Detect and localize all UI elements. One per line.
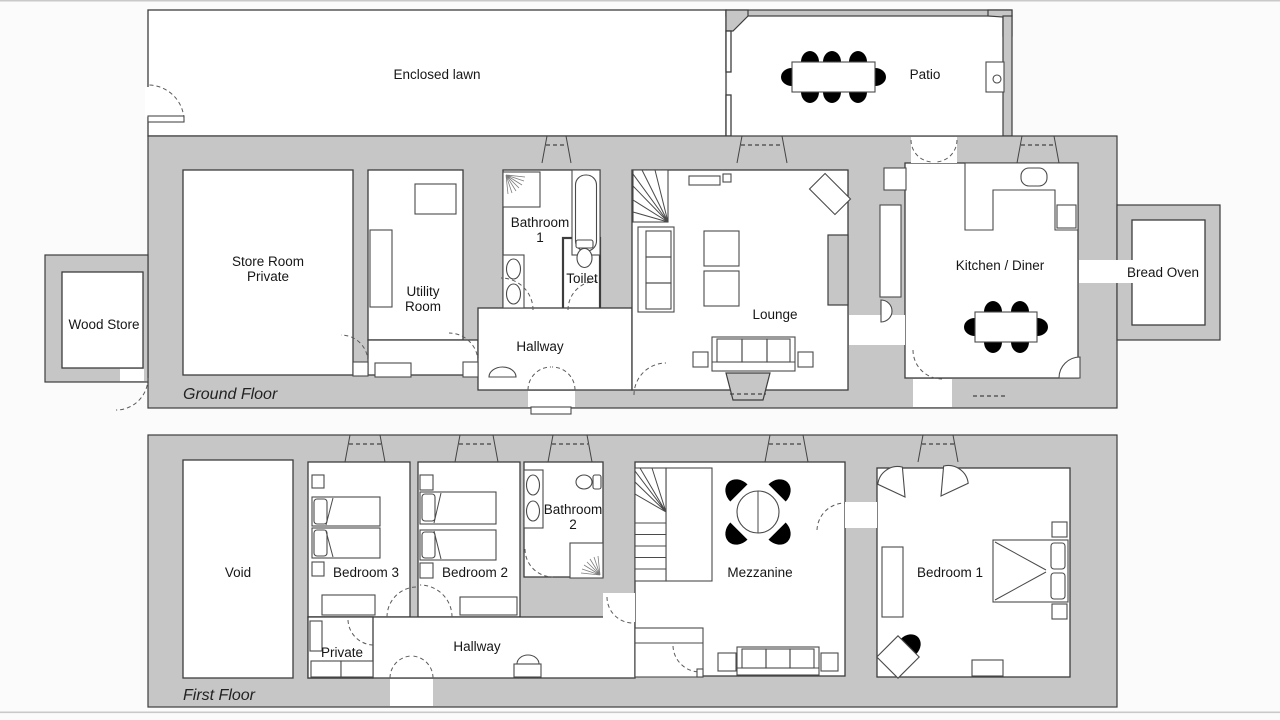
label-bathroom1-2: 1 — [536, 230, 544, 245]
label-bread-oven: Bread Oven — [1127, 265, 1199, 280]
label-toilet: Toilet — [566, 271, 598, 286]
kitchen-dresser-icon — [880, 205, 901, 297]
nightstand-icon — [312, 562, 324, 576]
label-private: Private — [321, 645, 363, 660]
sofa-bottom-icon — [712, 337, 795, 371]
bed-icon — [420, 530, 496, 560]
nightstand-icon — [1052, 604, 1067, 619]
toilet-icon — [576, 475, 601, 489]
store-room-door-sill — [353, 362, 368, 376]
label-bathroom2-1: Bathroom — [544, 502, 603, 517]
nightstand-icon — [312, 475, 324, 488]
chest-icon — [972, 660, 1003, 676]
bed-icon — [420, 492, 496, 524]
sofa-icon — [737, 647, 819, 675]
front-door-opening — [528, 391, 575, 407]
lawn-gate-leaf — [148, 116, 184, 122]
label-utility-2: Room — [405, 299, 441, 314]
label-utility-1: Utility — [407, 284, 440, 299]
utility-counter-icon — [370, 230, 392, 307]
dresser-icon — [322, 595, 375, 615]
cupboard-icon — [311, 661, 341, 677]
shelf-icon — [689, 176, 720, 185]
toilet-icon — [576, 240, 593, 268]
label-bathroom2-2: 2 — [569, 517, 577, 532]
speaker-icon — [723, 174, 731, 182]
double-bed-icon — [993, 540, 1068, 602]
side-table-icon — [693, 352, 708, 367]
label-bedroom2: Bedroom 2 — [442, 565, 508, 580]
fireplace-chimney — [726, 373, 770, 400]
bed-icon — [312, 528, 380, 558]
shower-icon — [570, 543, 603, 578]
hallway-sill — [463, 362, 478, 377]
label-bathroom1-1: Bathroom — [511, 215, 570, 230]
label-first-floor: First Floor — [183, 687, 256, 704]
stairs-ff-icon — [635, 468, 712, 581]
dresser-icon — [460, 597, 517, 615]
label-store-room-1: Store Room — [232, 254, 304, 269]
label-lounge: Lounge — [752, 307, 797, 322]
label-bedroom3: Bedroom 3 — [333, 565, 399, 580]
wood-store-door-arc — [116, 378, 148, 410]
label-void: Void — [225, 565, 251, 580]
front-door-step — [531, 407, 571, 414]
lawn-patio-divider-upper — [726, 31, 731, 72]
patio-kitchen-door-opening — [911, 137, 957, 163]
bottom-border — [0, 712, 1280, 714]
kitchen-garden-door-opening — [913, 379, 952, 407]
label-bedroom1: Bedroom 1 — [917, 565, 983, 580]
sofa-left-icon — [638, 227, 674, 312]
ground-floor-plan: Enclosed lawn Patio Wood Store Store Roo… — [45, 10, 1220, 414]
stairs-gf-icon — [633, 170, 668, 222]
nightstand-icon — [1052, 522, 1067, 537]
label-store-room-2: Private — [247, 269, 289, 284]
label-enclosed-lawn: Enclosed lawn — [393, 67, 480, 82]
label-ground-floor: Ground Floor — [183, 386, 278, 403]
cupboard-icon — [341, 661, 373, 677]
twin-sinks-icon — [503, 255, 524, 308]
washing-machine-icon — [415, 184, 456, 214]
kitchen-bread-oven-opening — [1079, 260, 1133, 283]
patio-top-wall — [726, 10, 1012, 16]
label-kitchen: Kitchen / Diner — [956, 258, 1045, 273]
patio-gate-fixture — [986, 62, 1004, 92]
floor-plan-drawing: Enclosed lawn Patio Wood Store Store Roo… — [0, 0, 1280, 720]
side-table-icon — [821, 653, 838, 671]
bed-icon — [312, 497, 380, 526]
hallway-mezzanine-opening — [603, 593, 635, 622]
shower-icon — [503, 172, 540, 207]
lawn-gate-opening — [145, 87, 152, 117]
label-patio: Patio — [910, 67, 941, 82]
lounge-chimney-breast — [828, 235, 848, 305]
kitchen-unit-icon — [884, 168, 906, 190]
side-table-icon — [798, 352, 813, 367]
lawn-patio-divider-lower — [726, 95, 731, 136]
lounge-kitchen-opening — [849, 315, 905, 345]
wardrobe-icon — [882, 547, 903, 617]
twin-sinks-icon — [524, 470, 543, 528]
armchair-icon — [704, 231, 739, 266]
first-floor-plan: Void Bedroom 3 Bedroom 2 Bathroom 2 Priv… — [148, 435, 1117, 707]
nightstand-icon — [420, 563, 433, 578]
closet — [635, 628, 703, 677]
label-hallway-gf: Hallway — [516, 339, 564, 354]
floor-plan-page: Enclosed lawn Patio Wood Store Store Roo… — [0, 0, 1280, 720]
stair-entrance-opening — [390, 679, 433, 706]
label-wood-store: Wood Store — [68, 317, 139, 332]
label-hallway-ff: Hallway — [453, 639, 501, 654]
top-border — [0, 0, 1280, 2]
nightstand-icon — [420, 475, 433, 490]
wood-store-door-opening — [120, 369, 144, 381]
label-mezzanine: Mezzanine — [727, 565, 792, 580]
armchair-icon — [704, 271, 739, 306]
mezzanine-bedroom1-opening — [845, 502, 877, 528]
corridor-sill — [375, 363, 411, 377]
side-table-icon — [718, 653, 736, 671]
